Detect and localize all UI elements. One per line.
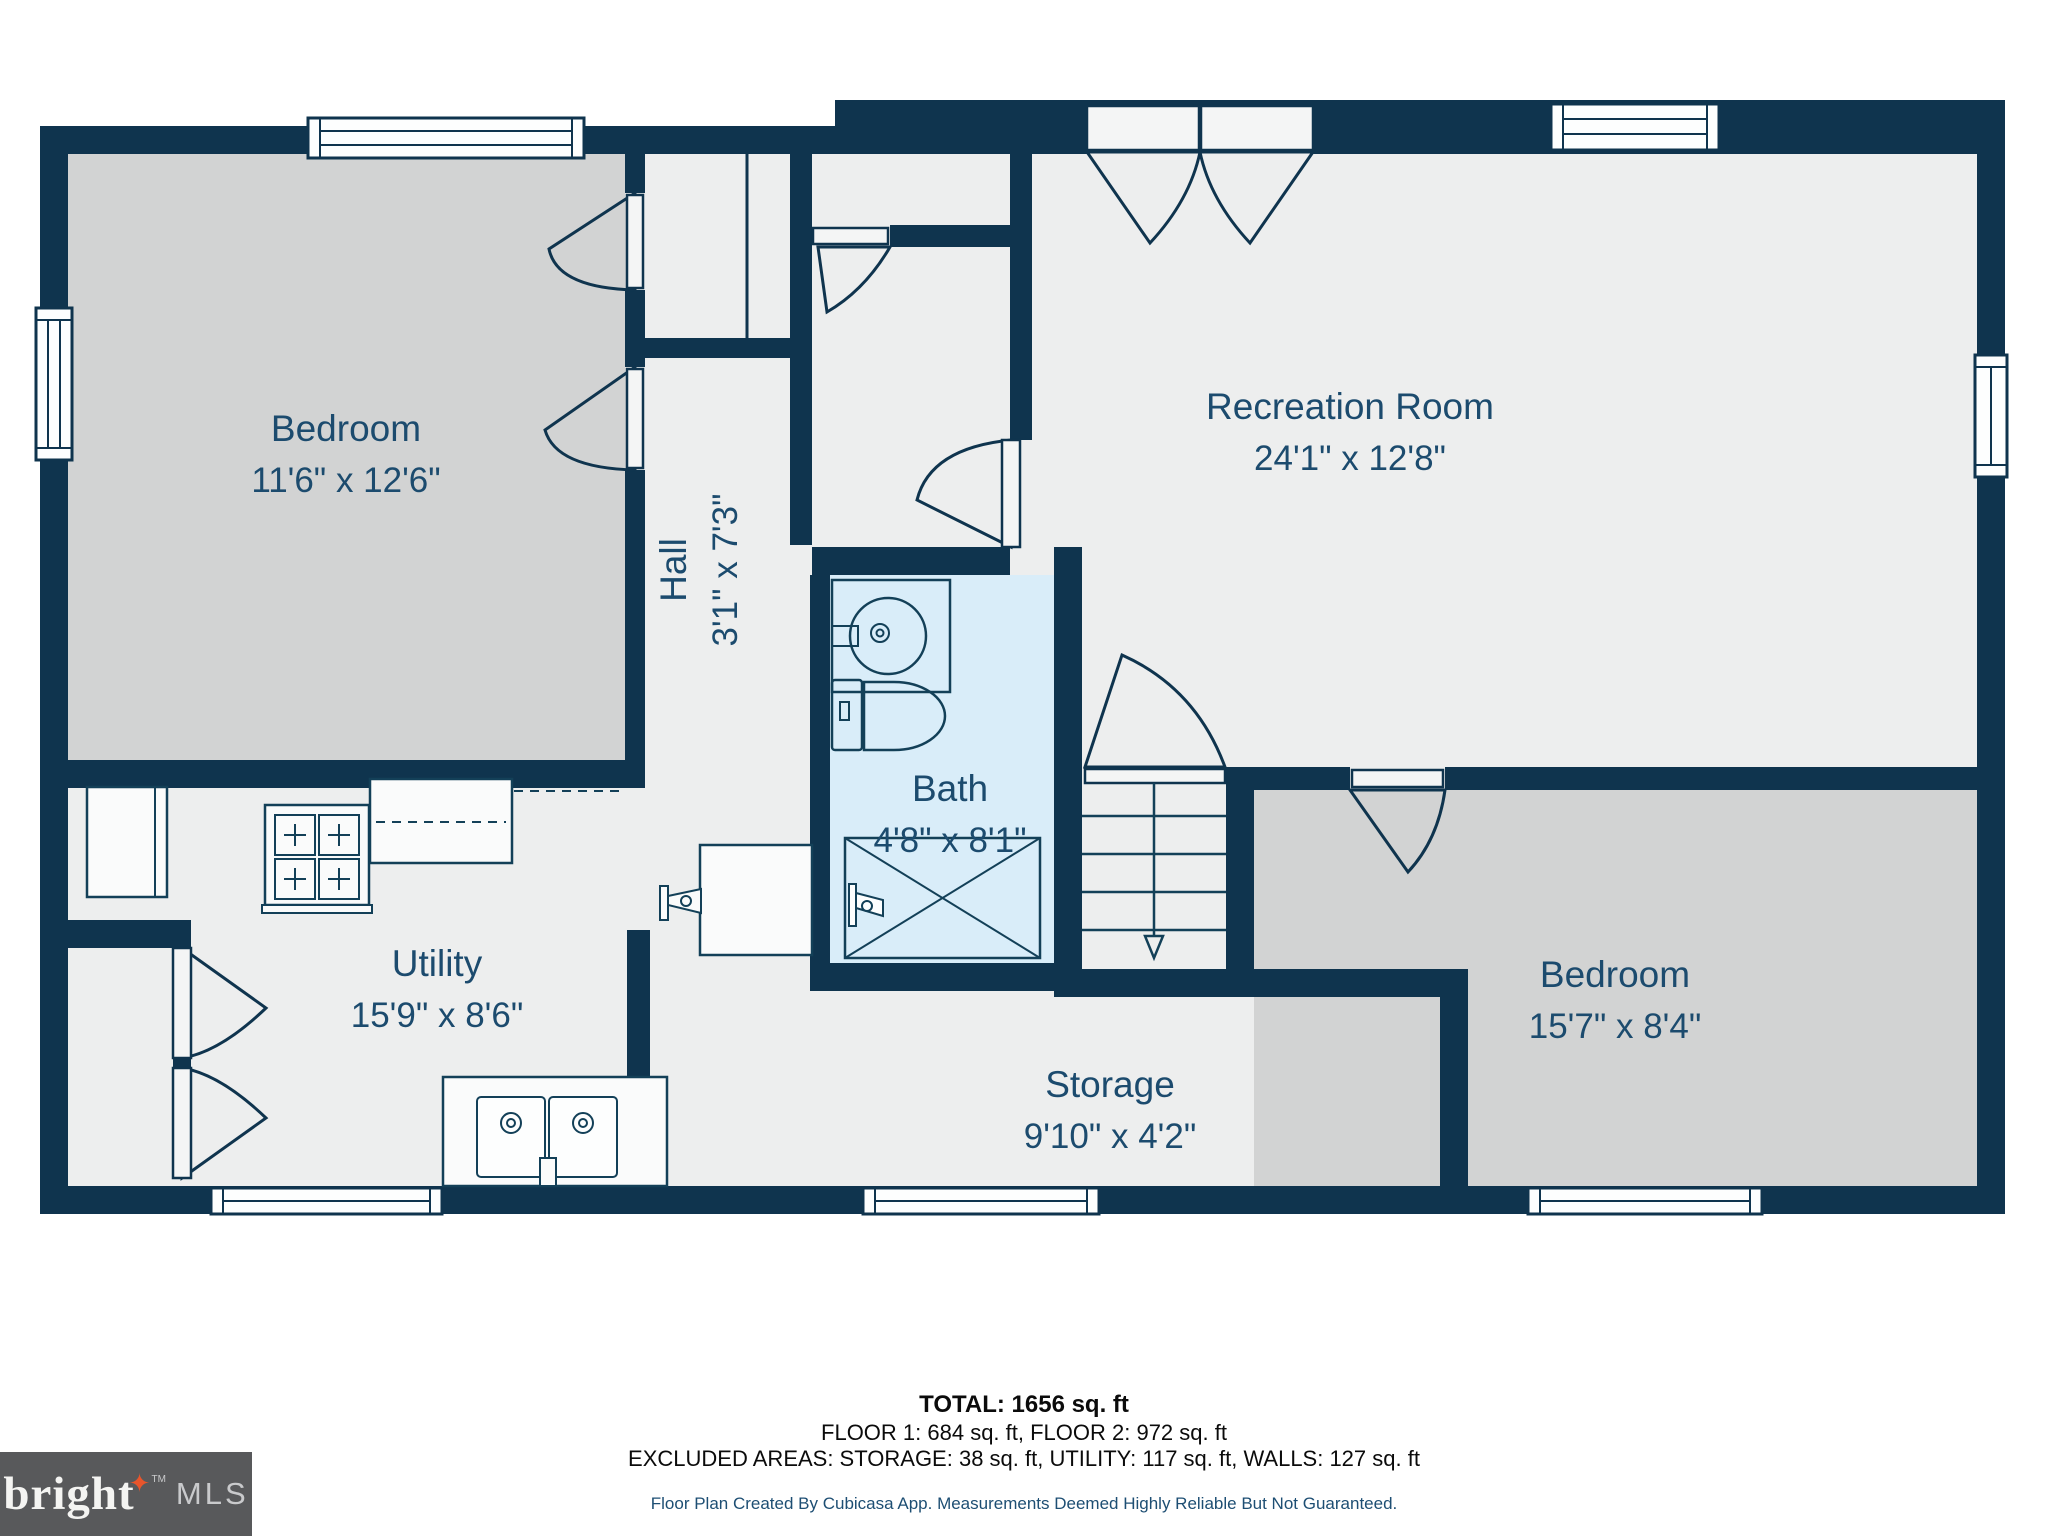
fridge-icon: [87, 787, 167, 897]
excluded-areas-text: EXCLUDED AREAS: STORAGE: 38 sq. ft, UTIL…: [0, 1446, 2048, 1472]
window-bottom-storage: [863, 1188, 1099, 1214]
total-area-text: TOTAL: 1656 sq. ft: [0, 1390, 2048, 1420]
logo-brand-text: bright: [3, 1467, 134, 1521]
window-top-recreation: [1551, 104, 1719, 150]
window-right-recreation: [1975, 355, 2007, 477]
floor-plan: Bedroom 11'6" x 12'6" Recreation Room 24…: [0, 0, 2048, 1536]
star-icon: ✦: [129, 1468, 151, 1499]
label-recreation-room: Recreation Room 24'1" x 12'8": [1206, 381, 1494, 485]
label-bath: Bath 4'8" x 8'1": [873, 763, 1026, 867]
window-left-bedroom: [36, 308, 72, 460]
label-utility: Utility 15'9" x 8'6": [351, 938, 524, 1042]
brightmls-logo: bright ✦ TM MLS: [0, 1452, 252, 1536]
window-bottom-bedroom-2: [1528, 1188, 1762, 1214]
trademark-text: TM: [151, 1474, 165, 1485]
label-storage: Storage 9'10" x 4'2": [1024, 1059, 1197, 1163]
window-bottom-utility: [211, 1188, 442, 1214]
label-hall: Hall 3'1" x 7'3": [648, 493, 752, 646]
floor-areas-text: FLOOR 1: 684 sq. ft, FLOOR 2: 972 sq. ft: [0, 1420, 2048, 1446]
footer: TOTAL: 1656 sq. ft FLOOR 1: 684 sq. ft, …: [0, 1390, 2048, 1514]
double-sink-icon: [443, 1077, 667, 1186]
label-bedroom-1: Bedroom 11'6" x 12'6": [251, 403, 440, 507]
window-top-bedroom: [308, 118, 584, 158]
stove-icon: [262, 805, 372, 913]
label-bedroom-2: Bedroom 15'7" x 8'4": [1529, 949, 1702, 1053]
disclaimer-text: Floor Plan Created By Cubicasa App. Meas…: [0, 1494, 2048, 1514]
logo-suffix-text: MLS: [176, 1476, 249, 1512]
